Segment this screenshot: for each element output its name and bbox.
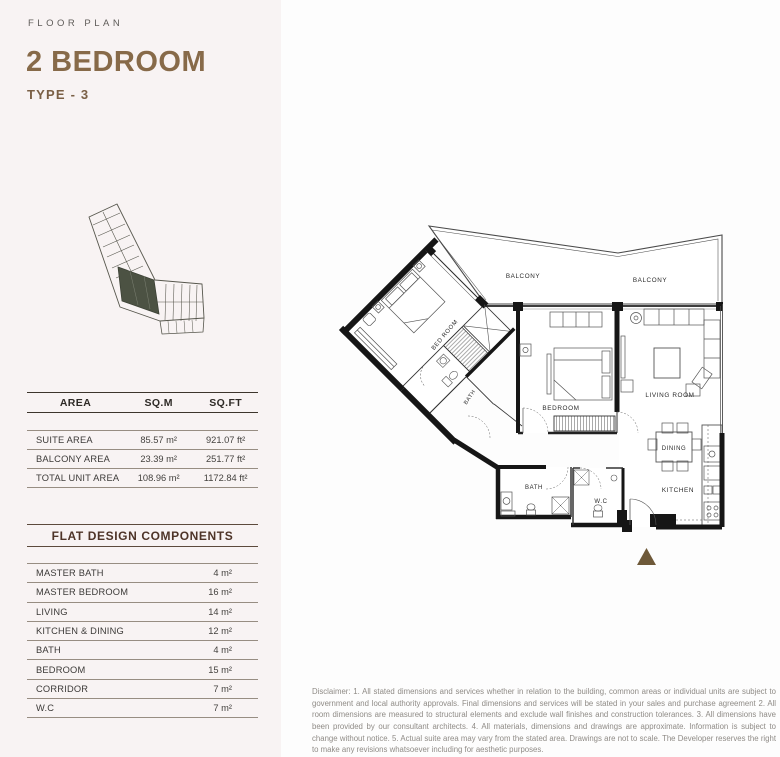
list-item: BEDROOM 15 m² [27, 660, 258, 679]
living-room-label: LIVING ROOM [645, 392, 694, 399]
list-item: CORRIDOR 7 m² [27, 680, 258, 699]
balcony-right-label: BALCONY [633, 277, 667, 284]
table-row: BALCONY AREA 23.39 m² 251.77 ft² [27, 450, 258, 469]
orientation-marker [637, 548, 656, 565]
list-item: MASTER BATH 4 m² [27, 564, 258, 583]
bath-label: BATH [525, 485, 543, 491]
area-table-header: AREA SQ.M SQ.FT [27, 392, 258, 413]
area-table: AREA SQ.M SQ.FT SUITE AREA 85.57 m² 921.… [27, 392, 258, 488]
components-table: FLAT DESIGN COMPONENTS MASTER BATH 4 m² … [27, 524, 258, 718]
col-sqm: SQ.M [124, 397, 193, 409]
corridor [454, 404, 522, 469]
page-title: 2 BEDROOM [26, 46, 206, 79]
floor-plan-drawing: BALCONY BALCONY [318, 218, 780, 578]
list-item: W.C 7 m² [27, 699, 258, 718]
col-sqft: SQ.FT [193, 397, 258, 409]
page-subtitle: TYPE - 3 [27, 87, 89, 102]
dining-label: DINING [662, 446, 687, 452]
balcony-left-label: BALCONY [506, 273, 540, 280]
table-row: TOTAL UNIT AREA 108.96 m² 1172.84 ft² [27, 469, 258, 488]
master-bath-label: BATH [463, 389, 477, 406]
disclaimer-text: Disclaimer: 1. All stated dimensions and… [312, 686, 776, 756]
bedroom-label: BEDROOM [542, 405, 579, 412]
wc-label: W.C [594, 499, 607, 505]
list-item: KITCHEN & DINING 12 m² [27, 622, 258, 641]
section-eyebrow: FLOOR PLAN [28, 18, 123, 29]
info-sidebar: FLOOR PLAN 2 BEDROOM TYPE - 3 [0, 0, 281, 757]
floor-plan-page: { "header": { "eyebrow": "FLOOR PLAN", "… [0, 0, 780, 757]
list-item: LIVING 14 m² [27, 603, 258, 622]
kitchen-label: KITCHEN [662, 487, 694, 494]
list-item: MASTER BEDROOM 16 m² [27, 583, 258, 602]
components-title: FLAT DESIGN COMPONENTS [27, 524, 258, 547]
key-plan-diagram [62, 200, 210, 340]
keyplan-unit-highlight [118, 267, 159, 314]
list-item: BATH 4 m² [27, 641, 258, 660]
table-row: SUITE AREA 85.57 m² 921.07 ft² [27, 431, 258, 450]
floor-plan-area: BALCONY BALCONY [318, 218, 780, 578]
col-area: AREA [27, 397, 124, 409]
